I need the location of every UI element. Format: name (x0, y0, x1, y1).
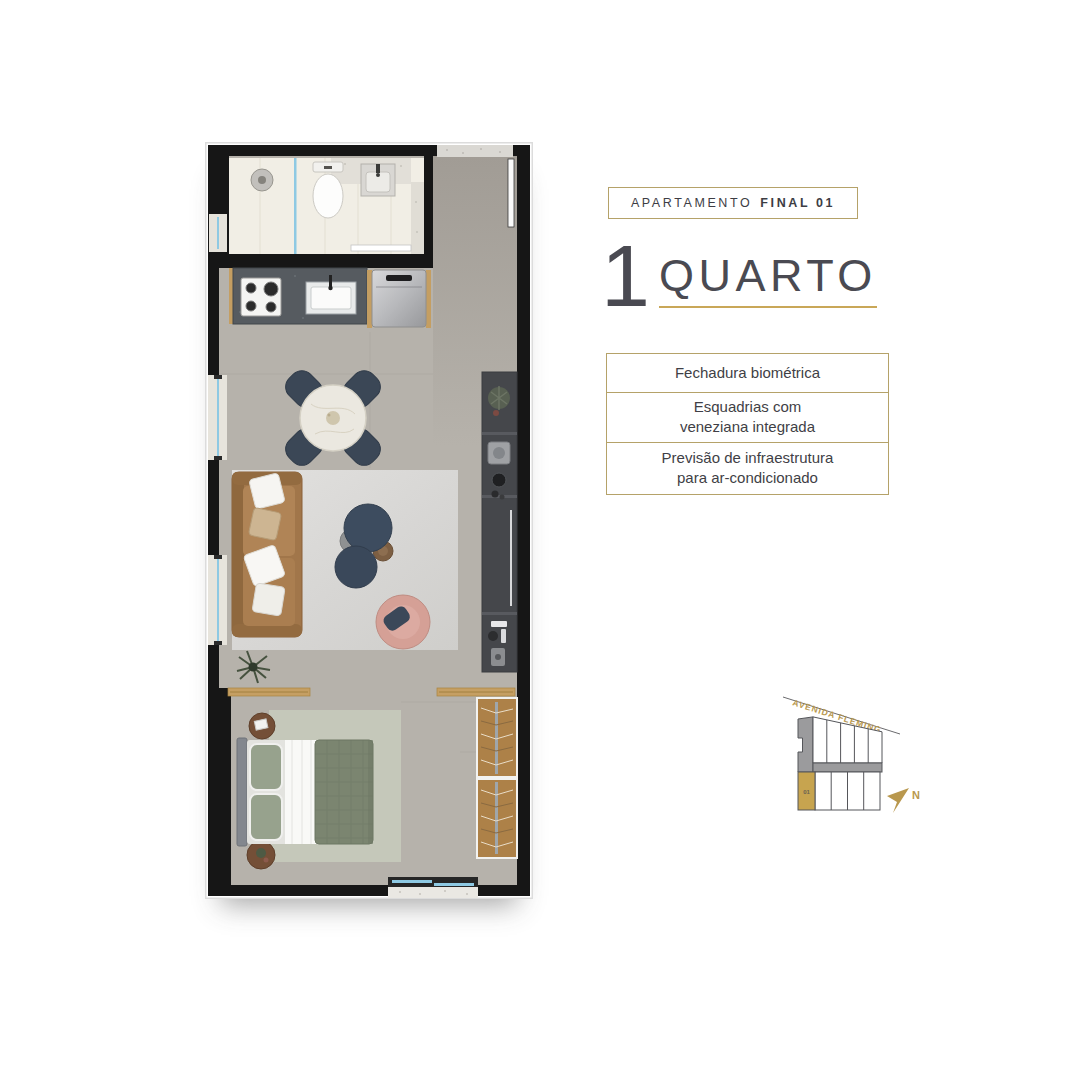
feature-list: Fechadura biométrica Esquadrias com vene… (606, 353, 889, 495)
bathroom-sink (361, 164, 395, 196)
bath-sliding-door (351, 245, 411, 251)
site-map: AVENIDA FLEMING 01 N (775, 680, 940, 824)
entry-threshold (437, 145, 513, 157)
nightstand-top (249, 713, 275, 739)
shower-glass (294, 158, 297, 254)
wall-under-bath (219, 254, 433, 268)
title-word: QUARTO (659, 253, 877, 308)
north-label: N (912, 789, 920, 801)
bed-pillow (250, 744, 282, 790)
bed-pillow (250, 794, 282, 840)
page: { "header": { "badge": { "prefix": "APAR… (0, 0, 1080, 1080)
north-arrow-icon (887, 788, 909, 813)
bed-sheet-fold (285, 740, 317, 844)
wardrobe (477, 698, 517, 858)
dining-table (300, 385, 366, 451)
toilet (313, 162, 343, 218)
sofa (232, 472, 302, 637)
living-window-upper (208, 375, 227, 460)
bedroom-window (388, 877, 478, 898)
feature-ac-infrastructure: Previsão de infraestrutura para ar-condi… (606, 442, 889, 495)
unit-01-label: 01 (803, 789, 810, 795)
cabinet-column (482, 372, 517, 672)
cooktop (241, 278, 281, 316)
bathroom-window (209, 214, 227, 252)
bed-duvet (315, 740, 373, 844)
bathroom (229, 158, 424, 254)
washing-machine (367, 270, 431, 328)
feature-window-frames: Esquadrias com veneziana integrada (606, 392, 889, 443)
apartment-final: FINAL 01 (760, 196, 835, 210)
corridor-gray (798, 717, 813, 772)
corridor-band (813, 763, 882, 772)
nightstand-bottom (247, 841, 275, 869)
title-number: 1 (601, 240, 648, 312)
bed (237, 738, 373, 846)
bath-niche (411, 182, 424, 254)
building-footprint (798, 717, 882, 810)
page-title: 1 QUARTO (601, 240, 877, 312)
cabinet-handle (510, 510, 512, 606)
entry-door-leaf (508, 159, 514, 227)
shower-head-icon (251, 169, 273, 191)
floor-plan (205, 142, 533, 899)
bedroom-left-pier (219, 688, 231, 885)
kitchen (229, 268, 431, 328)
armchair (376, 595, 430, 649)
feature-biometric-lock: Fechadura biométrica (606, 353, 889, 393)
living-window-lower (208, 555, 227, 645)
wall-bath-corridor (424, 156, 433, 254)
apartment-label-box: APARTAMENTOFINAL 01 (608, 187, 858, 219)
apartment-label: APARTAMENTO (631, 196, 752, 210)
